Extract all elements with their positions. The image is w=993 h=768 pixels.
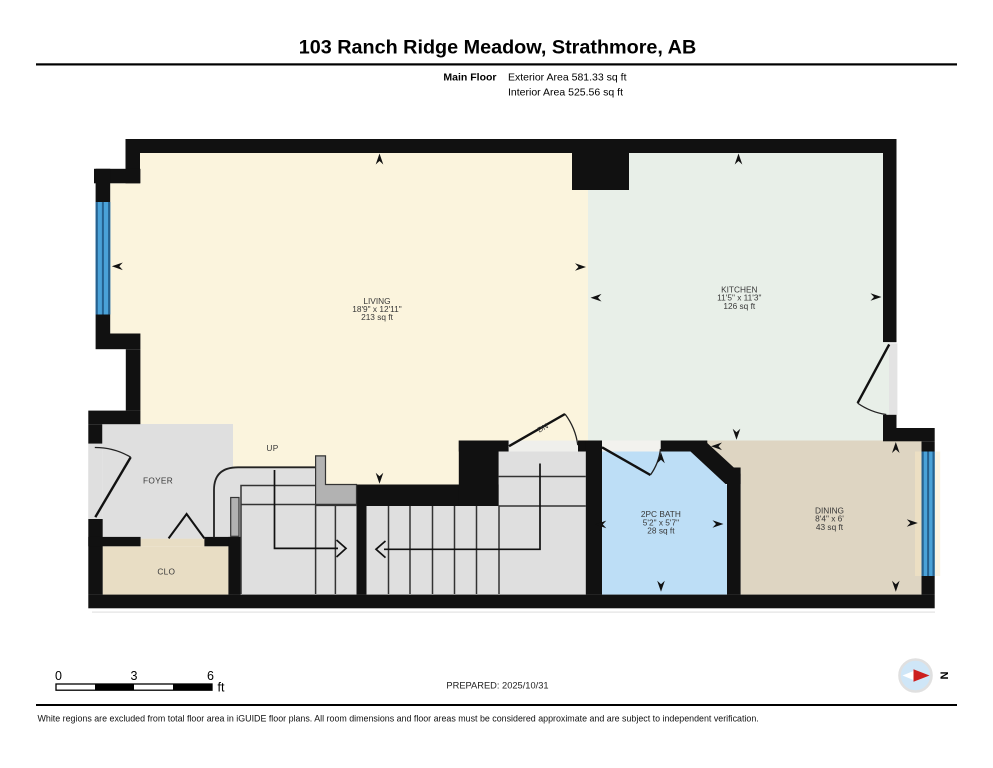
svg-text:N: N: [938, 672, 950, 680]
svg-text:Exterior Area 581.33 sq ft: Exterior Area 581.33 sq ft: [508, 71, 627, 83]
svg-text:FOYER: FOYER: [143, 475, 173, 485]
svg-text:28 sq ft: 28 sq ft: [647, 526, 675, 536]
svg-text:3: 3: [131, 669, 138, 683]
svg-text:Main Floor: Main Floor: [443, 71, 496, 83]
svg-text:103 Ranch Ridge Meadow, Strath: 103 Ranch Ridge Meadow, Strathmore, AB: [299, 37, 697, 59]
svg-text:CLO: CLO: [157, 566, 175, 576]
svg-text:43 sq ft: 43 sq ft: [816, 522, 844, 532]
svg-text:6: 6: [207, 669, 214, 683]
svg-text:0: 0: [55, 669, 62, 683]
svg-text:UP: UP: [266, 443, 278, 453]
svg-text:White regions are excluded fro: White regions are excluded from total fl…: [38, 714, 759, 724]
svg-text:Interior Area 525.56 sq ft: Interior Area 525.56 sq ft: [508, 86, 623, 98]
svg-text:PREPARED: 2025/10/31: PREPARED: 2025/10/31: [446, 681, 548, 691]
svg-text:126 sq ft: 126 sq ft: [723, 301, 756, 311]
svg-text:ft: ft: [218, 681, 225, 695]
svg-text:213 sq ft: 213 sq ft: [361, 312, 394, 322]
